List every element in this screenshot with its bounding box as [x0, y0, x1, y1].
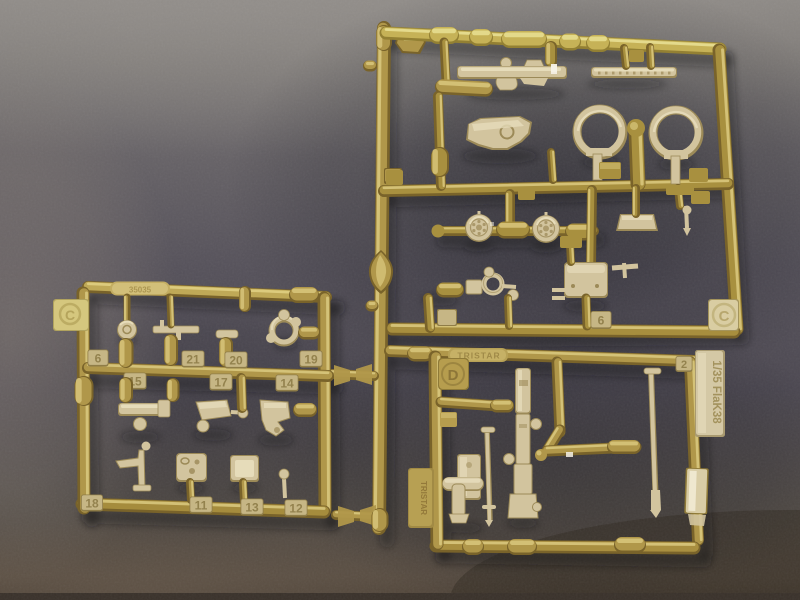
svg-text:11: 11	[195, 498, 208, 512]
svg-text:C: C	[719, 308, 730, 325]
svg-text:6: 6	[598, 313, 605, 327]
svg-text:17: 17	[214, 375, 228, 389]
svg-text:35035: 35035	[129, 286, 152, 295]
svg-text:2: 2	[681, 359, 687, 371]
svg-text:C: C	[65, 307, 75, 323]
svg-text:14: 14	[280, 376, 294, 390]
svg-text:20: 20	[229, 353, 243, 367]
svg-text:1/35 FlaK38: 1/35 FlaK38	[710, 360, 722, 424]
svg-text:D: D	[448, 367, 459, 384]
svg-text:18: 18	[85, 496, 99, 510]
svg-text:6: 6	[95, 351, 102, 365]
svg-text:21: 21	[186, 352, 200, 366]
svg-text:19: 19	[304, 352, 318, 366]
svg-text:13: 13	[245, 500, 259, 514]
svg-text:TRISTAR: TRISTAR	[419, 481, 428, 515]
svg-text:12: 12	[289, 501, 303, 515]
